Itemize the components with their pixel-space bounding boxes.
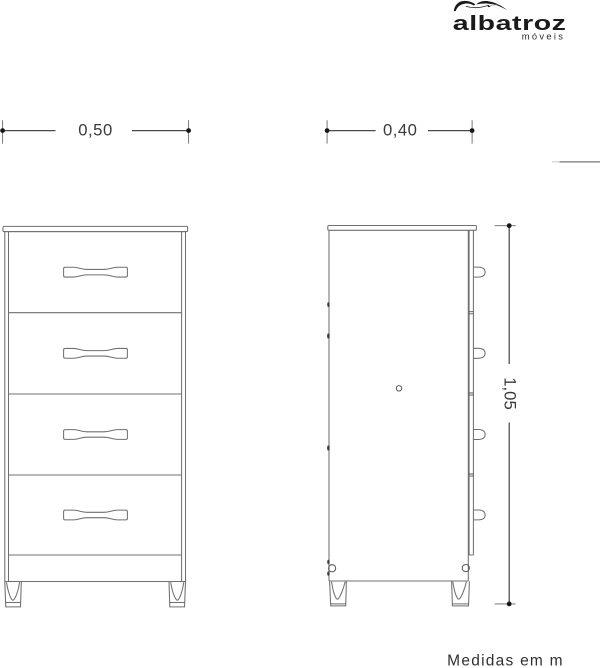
svg-text:0,50: 0,50 (78, 120, 112, 139)
svg-text:Medidas em m: Medidas em m (447, 653, 564, 668)
svg-text:móveis: móveis (522, 30, 566, 41)
svg-text:0,40: 0,40 (383, 121, 417, 140)
svg-text:1,05: 1,05 (501, 377, 520, 409)
